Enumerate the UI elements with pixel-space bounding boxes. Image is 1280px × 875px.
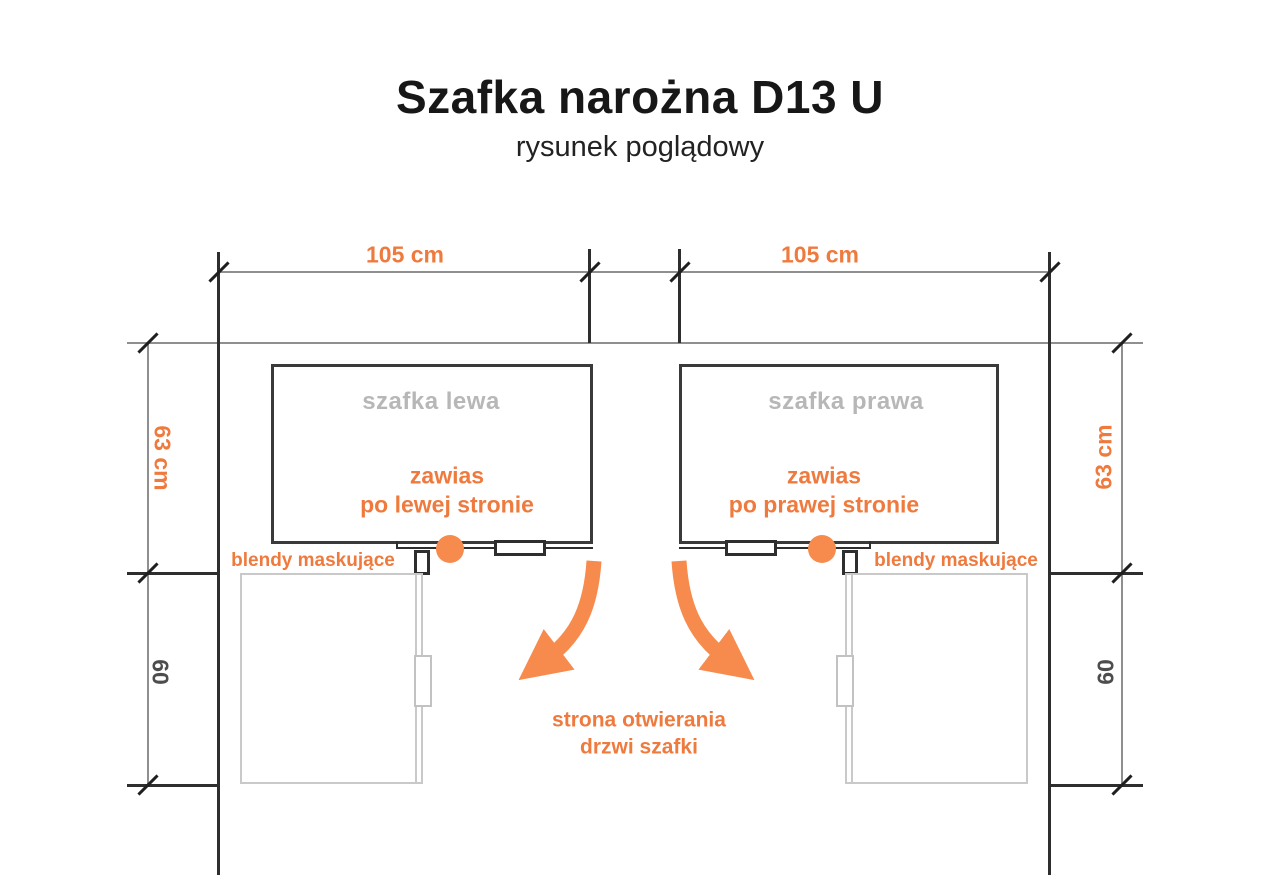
drawing-canvas: Szafka narożna D13 U rysunek poglądowy 1…: [0, 0, 1280, 875]
ledge-line-left-upper: [127, 572, 219, 575]
opening-side-note: strona otwierania drzwi szafki: [552, 707, 726, 762]
ledge-line-right-upper: [1049, 572, 1143, 575]
blendy-label-left: blendy maskujące: [231, 550, 395, 572]
left-dimension-line: [147, 343, 149, 786]
right-hinge-note-line2: po prawej stronie: [729, 491, 919, 517]
dimension-label-top-right: 105 cm: [781, 242, 859, 269]
right-dimension-line: [1121, 343, 1123, 786]
wall-line-right: [1048, 252, 1051, 875]
dimension-label-left-60: 60: [147, 659, 174, 685]
extension-line-mid-right: [678, 249, 681, 343]
extension-line-mid-left: [588, 249, 591, 343]
left-cabinet-handle: [494, 540, 546, 556]
right-gray-cabinet: [845, 573, 1028, 784]
right-blenda-strip: [842, 550, 858, 575]
right-cabinet-door-step: [869, 541, 871, 549]
left-gray-cabinet: [240, 573, 423, 784]
wall-top-line: [127, 342, 1143, 344]
left-cabinet-label: szafka lewa: [362, 388, 500, 416]
page-title: Szafka narożna D13 U: [0, 70, 1280, 124]
left-hinge-note: zawias po lewej stronie: [360, 461, 534, 519]
opening-side-note-line2: drzwi szafki: [580, 736, 698, 759]
page-subtitle: rysunek poglądowy: [0, 131, 1280, 164]
left-opening-arrow: [549, 561, 594, 657]
blendy-label-right: blendy maskujące: [874, 550, 1038, 572]
dimension-label-top-left: 105 cm: [366, 242, 444, 269]
right-cabinet-handle: [725, 540, 777, 556]
top-dimension-line: [219, 271, 1050, 273]
left-hinge-note-line1: zawias: [410, 462, 484, 488]
right-hinge-note-line1: zawias: [787, 462, 861, 488]
right-hinge-dot: [808, 535, 836, 563]
left-blenda-strip: [414, 550, 430, 575]
dimension-label-right-63: 63 cm: [1091, 424, 1118, 489]
left-hinge-dot: [436, 535, 464, 563]
right-opening-arrow: [679, 561, 724, 657]
left-gray-handle: [414, 655, 432, 707]
left-hinge-note-line2: po lewej stronie: [360, 491, 534, 517]
right-gray-handle: [836, 655, 854, 707]
ledge-line-left-lower: [127, 784, 219, 787]
ledge-line-right-lower: [1049, 784, 1143, 787]
opening-side-note-line1: strona otwierania: [552, 709, 726, 732]
left-cabinet-door-step: [396, 541, 398, 549]
right-hinge-note: zawias po prawej stronie: [729, 461, 919, 519]
right-cabinet-label: szafka prawa: [768, 388, 923, 416]
wall-line-left: [217, 252, 220, 875]
dimension-label-left-63: 63 cm: [149, 425, 176, 490]
dimension-label-right-60: 60: [1093, 659, 1120, 685]
